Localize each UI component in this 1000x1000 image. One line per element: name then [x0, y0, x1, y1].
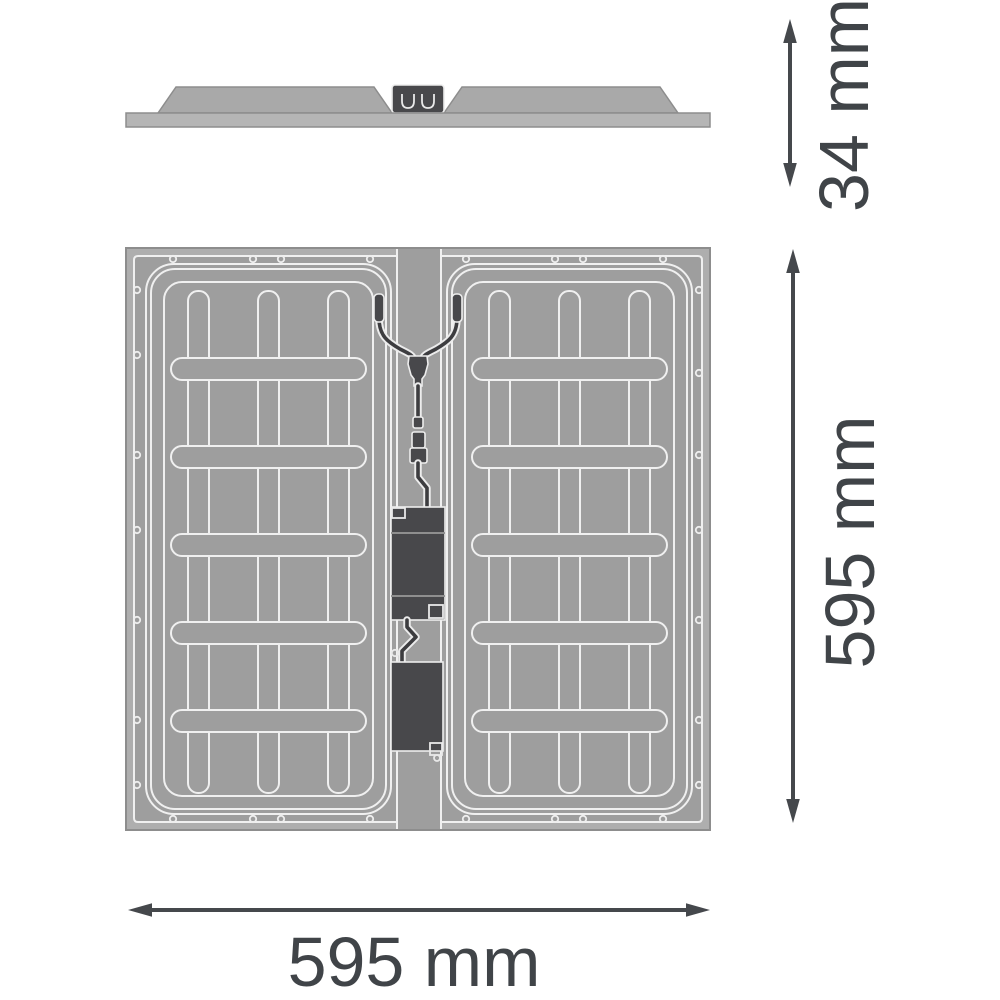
panel-back-view [126, 248, 710, 830]
cable-gland-left [374, 294, 384, 322]
arrow-down-icon [783, 163, 797, 187]
horizontal-rib [472, 358, 667, 380]
left-tray-ribs [171, 291, 366, 793]
inline-connector [413, 417, 423, 428]
profile-frame-bar [126, 113, 710, 127]
arrow-down-icon [786, 799, 800, 823]
horizontal-rib [472, 446, 667, 468]
panel-width-label: 595 mm [288, 923, 541, 1000]
horizontal-rib [472, 622, 667, 644]
horizontal-rib [472, 710, 667, 732]
led-driver-box-1 [391, 507, 445, 620]
drawing-canvas: 34 mm [0, 0, 1000, 1000]
panel-width-dimension: 595 mm [128, 903, 710, 1000]
profile-height-label: 34 mm [805, 0, 883, 212]
horizontal-rib [171, 534, 366, 556]
driver-body [391, 662, 443, 751]
driver-body [391, 507, 445, 620]
profile-housing-left [158, 87, 392, 113]
right-tray-ribs [472, 291, 667, 793]
profile-height-dimension: 34 mm [783, 0, 883, 212]
horizontal-rib [171, 710, 366, 732]
inline-connector [412, 432, 425, 448]
profile-connector-box [392, 85, 444, 113]
panel-height-label: 595 mm [811, 416, 889, 669]
horizontal-rib [472, 534, 667, 556]
arrow-left-icon [128, 903, 152, 917]
horizontal-rib [171, 622, 366, 644]
horizontal-rib [171, 358, 366, 380]
led-panel-dimension-drawing: 34 mm [0, 0, 1000, 1000]
arrow-up-icon [786, 249, 800, 273]
led-driver-box-2 [391, 662, 443, 761]
arrow-up-icon [783, 19, 797, 43]
horizontal-rib [171, 446, 366, 468]
side-profile-view [126, 85, 710, 127]
panel-height-dimension: 595 mm [786, 249, 889, 823]
arrow-right-icon [686, 903, 710, 917]
cable-gland-right [452, 294, 462, 322]
profile-housing-right [444, 87, 678, 113]
